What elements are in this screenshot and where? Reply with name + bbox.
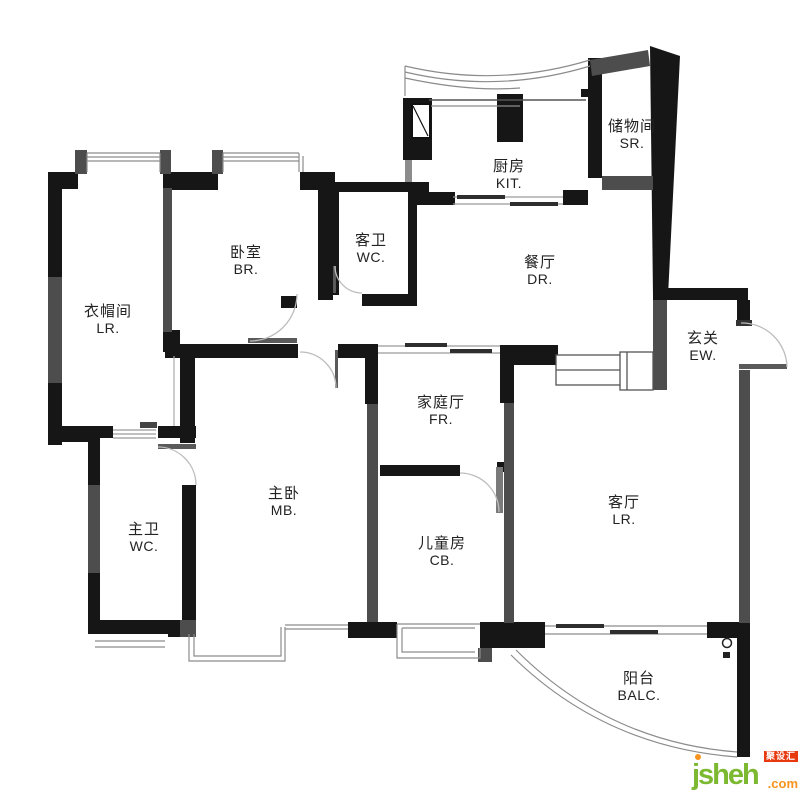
cabinet-niche (556, 352, 653, 390)
floor-plan-drawing (0, 0, 800, 794)
watermark-badge: 聚设汇 (764, 751, 798, 762)
door-leaves (140, 266, 787, 513)
master-bath-door-arc (158, 447, 196, 485)
watermark-dot-icon (695, 754, 701, 760)
floor-plan: 厨房 KIT. 储物间 SR. 卧室 BR. 客卫 WC. 餐厅 DR. 衣帽间… (0, 0, 800, 794)
site-watermark: jsheh 聚设汇 .com (692, 750, 798, 790)
guest-wc-door-arc (335, 266, 362, 293)
watermark-site-text: jsheh (692, 761, 758, 790)
flue-symbol (412, 104, 430, 138)
entry-door-arc (741, 323, 787, 367)
master-bed-door-arc (300, 352, 336, 388)
watermark-tld-text: .com (768, 777, 798, 790)
sliding-door-panels (405, 195, 658, 634)
balcony-fixtures (723, 639, 732, 659)
door-arcs (158, 266, 787, 512)
kids-room-door-arc (460, 473, 499, 512)
